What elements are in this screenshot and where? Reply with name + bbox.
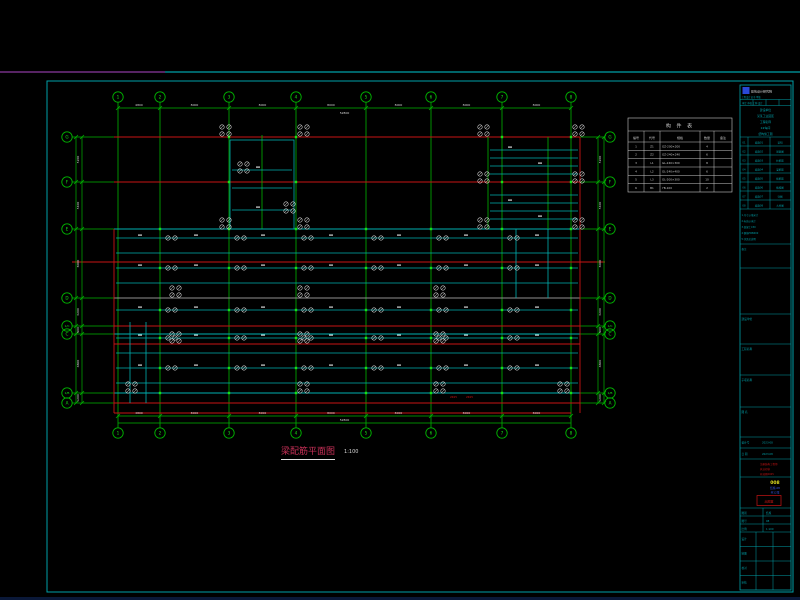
grid-node bbox=[295, 367, 297, 369]
dim-speck bbox=[397, 335, 401, 336]
axis-bubble-label: G bbox=[608, 135, 611, 140]
red-rebar-note: 2Φ25 bbox=[466, 395, 473, 399]
dim-speck bbox=[261, 265, 265, 266]
dim-speck bbox=[261, 235, 265, 236]
rebar-circle-slash bbox=[581, 133, 584, 136]
rebar-circle-slash bbox=[486, 126, 489, 129]
rebar-circle-slash bbox=[442, 287, 445, 290]
axis-bubble-label: A bbox=[609, 401, 612, 406]
grid-node bbox=[159, 228, 161, 230]
axis-bubble-label: C bbox=[609, 332, 612, 337]
sheet-table-cell: 结施06 bbox=[755, 186, 764, 190]
dimension-text: 8000 bbox=[327, 103, 335, 107]
dim-speck bbox=[138, 307, 142, 308]
axis-bubble-label: 1 bbox=[117, 431, 120, 436]
dim-speck bbox=[194, 365, 198, 366]
dimension-text: 8000 bbox=[191, 103, 199, 107]
dimension-text: 8000 bbox=[191, 411, 199, 415]
schedule-cell: GL-240×400 bbox=[662, 169, 680, 173]
title-block: 建筑设计研究院工程设计证书 甲级审定 审核 工种 设计建设单位某某工业园区工程名… bbox=[740, 85, 791, 590]
rebar-circle-slash bbox=[442, 390, 445, 393]
rebar-circle-slash bbox=[299, 226, 302, 229]
sheet-table-cell: 梁配筋 bbox=[776, 168, 784, 172]
axis-bubble-label: D bbox=[608, 296, 611, 301]
rebar-circle-slash bbox=[581, 173, 584, 176]
grid-node bbox=[159, 309, 161, 311]
grid-row-label: 图号 bbox=[742, 519, 748, 523]
note-line: 1.尺寸以毫米计 bbox=[742, 213, 759, 217]
staff-row-label: 审核 bbox=[742, 581, 748, 585]
rebar-circle-slash bbox=[178, 294, 181, 297]
axis-bubble-label: 4 bbox=[295, 95, 298, 100]
dimension-text: 1200 bbox=[76, 394, 80, 402]
rebar-circle-slash bbox=[221, 133, 224, 136]
dimension-text: 4800 bbox=[135, 103, 143, 107]
grid-node-markers bbox=[159, 136, 572, 394]
dim-speck bbox=[194, 265, 198, 266]
grid-node bbox=[501, 136, 503, 138]
info-value: 2023.08 bbox=[762, 452, 773, 456]
rebar-circle-slash bbox=[479, 133, 482, 136]
dim-speck bbox=[329, 265, 333, 266]
rebar-circle-slash bbox=[299, 219, 302, 222]
grid-axes bbox=[72, 102, 605, 428]
rebar-circle-slash bbox=[299, 340, 302, 343]
red-structural-lines bbox=[72, 137, 605, 413]
company-logo bbox=[743, 87, 750, 94]
dimension-text: 8000 bbox=[463, 411, 471, 415]
grid-node bbox=[228, 337, 230, 339]
dimension-text: 8000 bbox=[327, 411, 335, 415]
red-rebar-note: 2Φ25 bbox=[450, 395, 457, 399]
stamp-text: 出图章 bbox=[764, 498, 773, 503]
dim-speck bbox=[508, 200, 512, 201]
project-info-line: 2#车间 bbox=[761, 126, 771, 130]
rebar-circle-slash bbox=[574, 126, 577, 129]
axis-bubble-label: E bbox=[609, 227, 612, 232]
note-line: 4.钢筋HRB400 bbox=[742, 231, 759, 235]
company-name: 建筑设计研究院 bbox=[751, 89, 772, 94]
grid-node bbox=[159, 337, 161, 339]
dim-speck bbox=[397, 365, 401, 366]
rebar-circle-slash bbox=[299, 133, 302, 136]
rebar-circle-slash bbox=[178, 340, 181, 343]
schedule-cell: 2 bbox=[635, 153, 637, 157]
registration-red-line: 注册结构工程师 bbox=[760, 462, 778, 466]
axis-bubble-label: 1 bbox=[117, 95, 120, 100]
rebar-circle-slash bbox=[239, 163, 242, 166]
drawing-title: 梁配筋平面图1:100 bbox=[281, 439, 358, 458]
sheet-table-cell: 结施07 bbox=[755, 195, 764, 199]
axis-bubble-label: 6 bbox=[430, 95, 433, 100]
grid-node bbox=[295, 337, 297, 339]
sheet-table-cell: 01 bbox=[742, 141, 746, 145]
info-label: 设计号 bbox=[742, 441, 750, 445]
grid-node bbox=[365, 228, 367, 230]
schedule-cell: L2 bbox=[650, 169, 654, 173]
rebar-circle-slash bbox=[306, 126, 309, 129]
dim-speck bbox=[138, 265, 142, 266]
red-annotations: 2Φ252Φ25 bbox=[450, 395, 473, 399]
sheet-table-cell: 07 bbox=[742, 195, 746, 199]
axis-bubble-label: 4 bbox=[295, 431, 298, 436]
rebar-circle-slash bbox=[221, 226, 224, 229]
schedule-cell: 3 bbox=[635, 161, 637, 165]
axis-bubble-label: G bbox=[65, 135, 68, 140]
schedule-header: 备注 bbox=[720, 135, 726, 140]
grid-row-label: 比例 bbox=[742, 527, 748, 531]
rebar-circle-slash bbox=[127, 390, 130, 393]
grid-node bbox=[365, 392, 367, 394]
grid-node bbox=[501, 181, 503, 183]
sheet-table-cell: 说明 bbox=[777, 141, 783, 145]
rebar-circle-slash bbox=[574, 226, 577, 229]
grid-node bbox=[430, 392, 432, 394]
axis-bubble-label: C bbox=[66, 332, 69, 337]
rebar-circle-slash bbox=[134, 390, 137, 393]
schedule-cell: GZ-200×200 bbox=[662, 144, 680, 148]
grid-node bbox=[295, 267, 297, 269]
axis-bubble-label: 1/B bbox=[608, 391, 613, 395]
grid-node bbox=[295, 392, 297, 394]
note-line: 2.标高以米计 bbox=[742, 219, 757, 223]
grid-node bbox=[228, 367, 230, 369]
review-fields: 审定 审核 工种 设计 bbox=[742, 101, 763, 105]
dimension-annotations: 4800800080008000800080008000528004800800… bbox=[74, 103, 606, 423]
sheet-table-cell: 大样图 bbox=[776, 204, 784, 208]
sheet-table-cell: 板配筋 bbox=[776, 177, 784, 181]
schedule-cell: 4 bbox=[635, 169, 637, 173]
rebar-circle-slash bbox=[306, 390, 309, 393]
certificate-line: 工程设计证书 甲级 bbox=[742, 95, 762, 99]
schedule-cell: L3 bbox=[650, 178, 654, 182]
schedule-cell: 8 bbox=[706, 161, 708, 165]
dim-speck bbox=[138, 235, 142, 236]
registration-red-line: 有效期2025 bbox=[760, 472, 774, 476]
dimension-text: 900 bbox=[598, 327, 602, 333]
dim-speck bbox=[535, 235, 539, 236]
dim-speck bbox=[397, 307, 401, 308]
box-label: 工程名称 bbox=[742, 347, 753, 351]
schedule-cell: GZ-240×240 bbox=[662, 153, 680, 157]
grid-node bbox=[228, 392, 230, 394]
schedule-cell: 4 bbox=[706, 144, 708, 148]
staff-row-label: 制图 bbox=[742, 552, 748, 556]
sheet-table-cell: 05 bbox=[742, 177, 746, 181]
grid-node bbox=[295, 136, 297, 138]
axis-bubble-label: A bbox=[66, 401, 69, 406]
schedule-cell: YB-100 bbox=[662, 186, 672, 190]
rebar-circle-slash bbox=[479, 173, 482, 176]
dim-speck bbox=[464, 307, 468, 308]
registration-red-line: 执业印章 bbox=[760, 467, 771, 471]
project-info-line: 建设单位 bbox=[760, 108, 771, 112]
dimension-text: 6800 bbox=[76, 360, 80, 368]
axis-bubbles: 1122334455667788GGFFEEDD1/C1/CCC1/B1/BAA bbox=[62, 92, 615, 438]
grid-node bbox=[501, 337, 503, 339]
axis-bubble-label: F bbox=[609, 180, 612, 185]
dim-speck bbox=[508, 147, 512, 148]
dimension-text: 5400 bbox=[598, 202, 602, 210]
schedule-header: 数量 bbox=[704, 135, 710, 140]
schedule-header: 代号 bbox=[649, 135, 655, 140]
grid-node bbox=[228, 181, 230, 183]
sheet-table-cell: 柱配筋 bbox=[776, 159, 784, 163]
grid-node bbox=[501, 367, 503, 369]
grid-node bbox=[159, 267, 161, 269]
grid-node bbox=[365, 367, 367, 369]
project-info-line: 工程名称 bbox=[760, 120, 771, 124]
dimension-text: 8000 bbox=[395, 103, 403, 107]
rebar-circle-slash bbox=[221, 219, 224, 222]
dimension-text: 8000 bbox=[463, 103, 471, 107]
blue-info-line: 共12张 bbox=[771, 491, 780, 495]
axis-bubble-label: 3 bbox=[228, 95, 231, 100]
rebar-circle-slash bbox=[306, 219, 309, 222]
grid-node bbox=[570, 309, 572, 311]
blue-info-line: 结施-08 bbox=[770, 486, 780, 490]
axis-bubble-label: 2 bbox=[159, 95, 162, 100]
schedule-cell: L1 bbox=[650, 161, 654, 165]
dimension-text: 3200 bbox=[76, 308, 80, 316]
dim-speck bbox=[256, 167, 260, 168]
schedule-cell: 2 bbox=[706, 186, 708, 190]
dim-speck bbox=[397, 235, 401, 236]
sheet-table-cell: 结施03 bbox=[755, 159, 764, 163]
dimension-total-text: 52800 bbox=[340, 111, 350, 115]
staff-row-label: 校对 bbox=[742, 566, 748, 570]
schedule-cell: GL-200×300 bbox=[662, 178, 680, 182]
grid-node bbox=[501, 309, 503, 311]
dim-speck bbox=[138, 335, 142, 336]
dimension-text: 8000 bbox=[395, 411, 403, 415]
grid-node bbox=[430, 228, 432, 230]
dim-speck bbox=[138, 365, 142, 366]
grid-node bbox=[501, 392, 503, 394]
grid-node bbox=[570, 392, 572, 394]
remark-label: 备注 bbox=[742, 247, 748, 251]
dim-speck bbox=[194, 335, 198, 336]
rebar-circle-slash bbox=[442, 340, 445, 343]
schedule-cell: 5 bbox=[635, 178, 637, 182]
grid-node bbox=[365, 309, 367, 311]
grid-node bbox=[159, 367, 161, 369]
component-schedule-table: 构 件 表编号代号规格数量备注1Z1GZ-200×20042Z2GZ-240×2… bbox=[628, 118, 732, 192]
dimension-text: 4800 bbox=[135, 411, 143, 415]
rebar-circle-slash bbox=[574, 133, 577, 136]
grid-node bbox=[295, 228, 297, 230]
rebar-circle-slash bbox=[581, 226, 584, 229]
axis-bubble-label: 1/C bbox=[64, 324, 69, 328]
project-info-line: 结构施工图 bbox=[759, 132, 773, 136]
grid-node bbox=[570, 136, 572, 138]
dim-speck bbox=[261, 335, 265, 336]
rebar-circle-slash bbox=[299, 294, 302, 297]
dim-speck bbox=[256, 207, 260, 208]
sheet-frame bbox=[0, 72, 800, 600]
dim-speck bbox=[397, 265, 401, 266]
schedule-cell: 6 bbox=[706, 169, 708, 173]
cad-application-viewport: { "app": {"type": "cad-model-space", "ba… bbox=[0, 0, 800, 600]
sheet-table-cell: 结施02 bbox=[755, 150, 764, 154]
schedule-cell: Z1 bbox=[650, 144, 654, 148]
sheet-table-cell: 结施01 bbox=[755, 141, 764, 145]
grid-node bbox=[430, 267, 432, 269]
sheet-table-cell: 结施05 bbox=[755, 177, 764, 181]
rebar-circle-slash bbox=[435, 390, 438, 393]
dim-speck bbox=[329, 335, 333, 336]
rebar-circle-slash bbox=[435, 287, 438, 290]
rebar-circle-slash bbox=[486, 133, 489, 136]
rebar-circle-slash bbox=[581, 219, 584, 222]
rebar-circle-slash bbox=[171, 294, 174, 297]
grid-node bbox=[228, 267, 230, 269]
schedule-title: 构 件 表 bbox=[666, 123, 694, 130]
grid-node bbox=[430, 309, 432, 311]
rebar-circle-slash bbox=[299, 390, 302, 393]
rebar-circle-slash bbox=[306, 340, 309, 343]
info-label: 日 期 bbox=[742, 452, 748, 456]
grid-node bbox=[570, 228, 572, 230]
rebar-circle-slash bbox=[171, 287, 174, 290]
schedule-cell: 10 bbox=[705, 178, 709, 182]
dim-speck bbox=[464, 235, 468, 236]
staff-row-label: 设计 bbox=[742, 537, 748, 541]
drawing-scale-text: 1:100 bbox=[344, 449, 358, 455]
dim-speck bbox=[535, 365, 539, 366]
dimension-text: 8000 bbox=[598, 260, 602, 268]
note-line: 3.混凝土C30 bbox=[742, 225, 757, 229]
rebar-circle-slash bbox=[171, 340, 174, 343]
cad-drawing-canvas[interactable]: 1122334455667788GGFFEEDD1/C1/CCC1/B1/BAA… bbox=[0, 0, 800, 600]
grid-row-value: 结施 bbox=[766, 511, 772, 515]
rebar-circle-slash bbox=[442, 294, 445, 297]
dimension-text: 8000 bbox=[259, 103, 267, 107]
sheet-table-cell: 结施04 bbox=[755, 168, 764, 172]
box-label: 建设单位 bbox=[742, 317, 753, 321]
rebar-circle-slash bbox=[299, 287, 302, 290]
sheet-table-cell: 08 bbox=[742, 204, 746, 208]
sheet-table-cell: 02 bbox=[742, 150, 746, 154]
rebar-circle-slash bbox=[566, 390, 569, 393]
schedule-header: 编号 bbox=[633, 135, 639, 140]
project-info-line: 某某工业园区 bbox=[757, 114, 774, 118]
dim-speck bbox=[538, 163, 542, 164]
grid-node bbox=[365, 337, 367, 339]
dim-speck bbox=[535, 265, 539, 266]
dim-speck bbox=[261, 307, 265, 308]
axis-bubble-label: 8 bbox=[570, 95, 573, 100]
axis-bubble-label: 3 bbox=[228, 431, 231, 436]
grid-node bbox=[430, 367, 432, 369]
grid-node bbox=[228, 309, 230, 311]
sheet-table-cell: 06 bbox=[742, 186, 746, 190]
dimension-text: 1200 bbox=[598, 394, 602, 402]
grid-node bbox=[295, 181, 297, 183]
axis-bubble-label: F bbox=[66, 180, 69, 185]
rebar-circle-slash bbox=[306, 133, 309, 136]
dim-speck bbox=[329, 235, 333, 236]
axis-bubble-label: 2 bbox=[159, 431, 162, 436]
rebar-circle-slash bbox=[306, 226, 309, 229]
dimension-text: 3200 bbox=[598, 308, 602, 316]
grid-node bbox=[159, 392, 161, 394]
grid-node bbox=[295, 309, 297, 311]
dim-speck bbox=[464, 265, 468, 266]
info-value: 2023-08 bbox=[762, 441, 773, 445]
drawing-title-text: 梁配筋平面图 bbox=[281, 447, 335, 460]
dim-speck bbox=[329, 365, 333, 366]
dimension-total-text: 52800 bbox=[340, 418, 350, 422]
cyan-beam-lines bbox=[116, 140, 578, 403]
grid-node bbox=[501, 228, 503, 230]
dim-speck bbox=[464, 335, 468, 336]
grid-node bbox=[430, 337, 432, 339]
dim-speck bbox=[194, 307, 198, 308]
sheet-table-cell: 楼梯图 bbox=[776, 186, 784, 190]
box-label: 子项名称 bbox=[742, 378, 753, 382]
rebar-circle-slash bbox=[435, 340, 438, 343]
axis-bubble-label: 7 bbox=[501, 431, 504, 436]
dim-speck bbox=[329, 307, 333, 308]
dim-speck bbox=[464, 365, 468, 366]
axis-bubble-label: 8 bbox=[570, 431, 573, 436]
rebar-circle-slash bbox=[299, 126, 302, 129]
schedule-cell: Z2 bbox=[650, 153, 654, 157]
grid-node bbox=[570, 267, 572, 269]
schedule-cell: 6 bbox=[706, 153, 708, 157]
dim-speck bbox=[261, 365, 265, 366]
dimension-text: 5200 bbox=[598, 156, 602, 164]
schedule-cell: 6 bbox=[635, 186, 637, 190]
rebar-circle-slash bbox=[306, 287, 309, 290]
dimension-text: 8000 bbox=[259, 411, 267, 415]
sheet-table-cell: 结施08 bbox=[755, 204, 764, 208]
dimension-text: 8000 bbox=[533, 411, 541, 415]
dim-speck bbox=[538, 216, 542, 217]
dimension-text: 900 bbox=[76, 327, 80, 333]
dim-speck bbox=[535, 335, 539, 336]
axis-bubble-label: 1/C bbox=[607, 324, 612, 328]
schedule-cell: GL-240×300 bbox=[662, 161, 680, 165]
schedule-cell: 1 bbox=[635, 144, 637, 148]
axis-bubble-label: 1/B bbox=[65, 391, 70, 395]
dim-speck bbox=[535, 307, 539, 308]
dim-speck bbox=[194, 235, 198, 236]
dimension-text: 5400 bbox=[76, 202, 80, 210]
grid-node bbox=[570, 337, 572, 339]
rebar-circle-slash bbox=[306, 294, 309, 297]
dimension-text: 8000 bbox=[76, 260, 80, 268]
rebar-circle-slash bbox=[559, 390, 562, 393]
note-line: 5.详见总说明 bbox=[742, 237, 757, 241]
grid-row-label: 图别 bbox=[742, 511, 748, 515]
grid-node bbox=[570, 181, 572, 183]
schedule-cell: B1 bbox=[650, 186, 654, 190]
sheet-table-cell: 04 bbox=[742, 168, 746, 172]
grid-node bbox=[365, 267, 367, 269]
schedule-header: 规格 bbox=[677, 135, 683, 140]
grid-row-value: 08 bbox=[766, 519, 770, 523]
axis-bubble-label: 5 bbox=[365, 95, 368, 100]
grid-row-value: 1:100 bbox=[766, 527, 774, 531]
dimension-text: 8000 bbox=[533, 103, 541, 107]
rebar-circle-slash bbox=[178, 287, 181, 290]
rebar-circle-slash bbox=[479, 219, 482, 222]
axis-bubble-label: 5 bbox=[365, 431, 368, 436]
axis-bubble-label: 6 bbox=[430, 431, 433, 436]
sheet-table-cell: 详图 bbox=[777, 195, 783, 199]
